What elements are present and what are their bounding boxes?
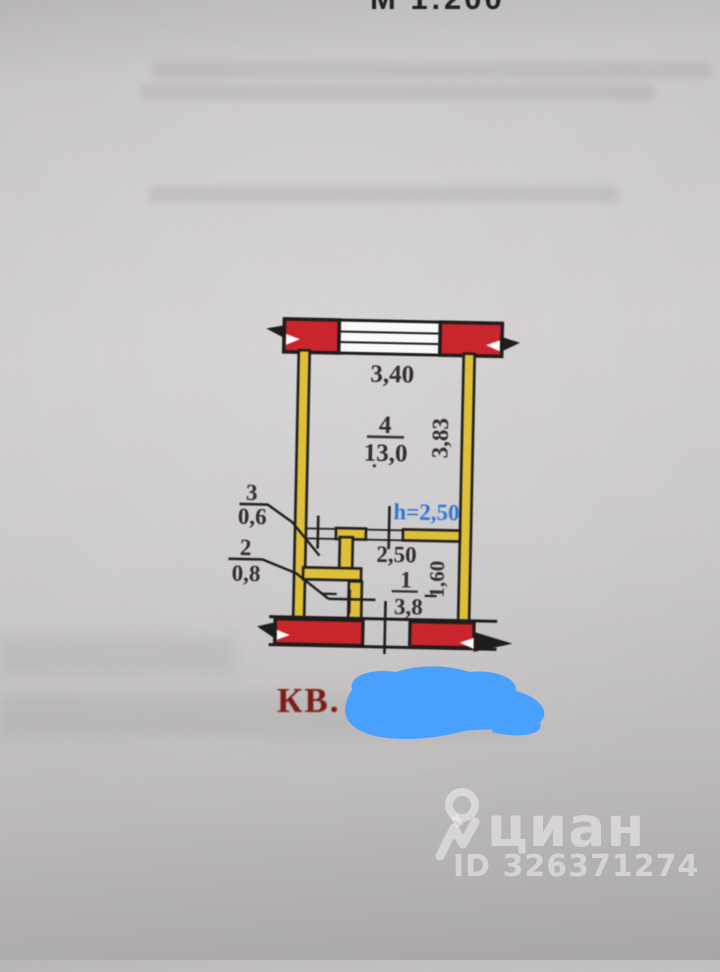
partition-wall-horizontal (303, 567, 361, 580)
ceiling-height-note: h=2,50 (393, 499, 460, 525)
dim-right: 3,83 (428, 418, 454, 459)
door-tick (384, 601, 385, 654)
room1-area: 3,8 (394, 594, 423, 620)
dim-hall-right: 1,60 (425, 560, 450, 597)
room3-number: 3 (246, 480, 258, 505)
room1-number: 1 (400, 567, 412, 592)
watermark-listing-id: ID 326371274 (453, 849, 699, 884)
apartment-number-label: КВ. (277, 681, 340, 721)
right-wall (458, 354, 475, 625)
room2-area: 0,8 (231, 561, 260, 587)
room3-area: 0,6 (238, 504, 267, 530)
room2-number: 2 (240, 535, 252, 560)
dim-top: 3,40 (370, 361, 414, 389)
door-tick (318, 516, 319, 549)
wall-end-arrow (500, 336, 520, 352)
room4-area: 13,0 (363, 440, 407, 468)
dim-hall: 2,50 (376, 542, 417, 568)
wall-end-arrow (266, 324, 286, 338)
wall-end-arrow (257, 621, 277, 639)
room4-number: 4 (379, 412, 393, 439)
